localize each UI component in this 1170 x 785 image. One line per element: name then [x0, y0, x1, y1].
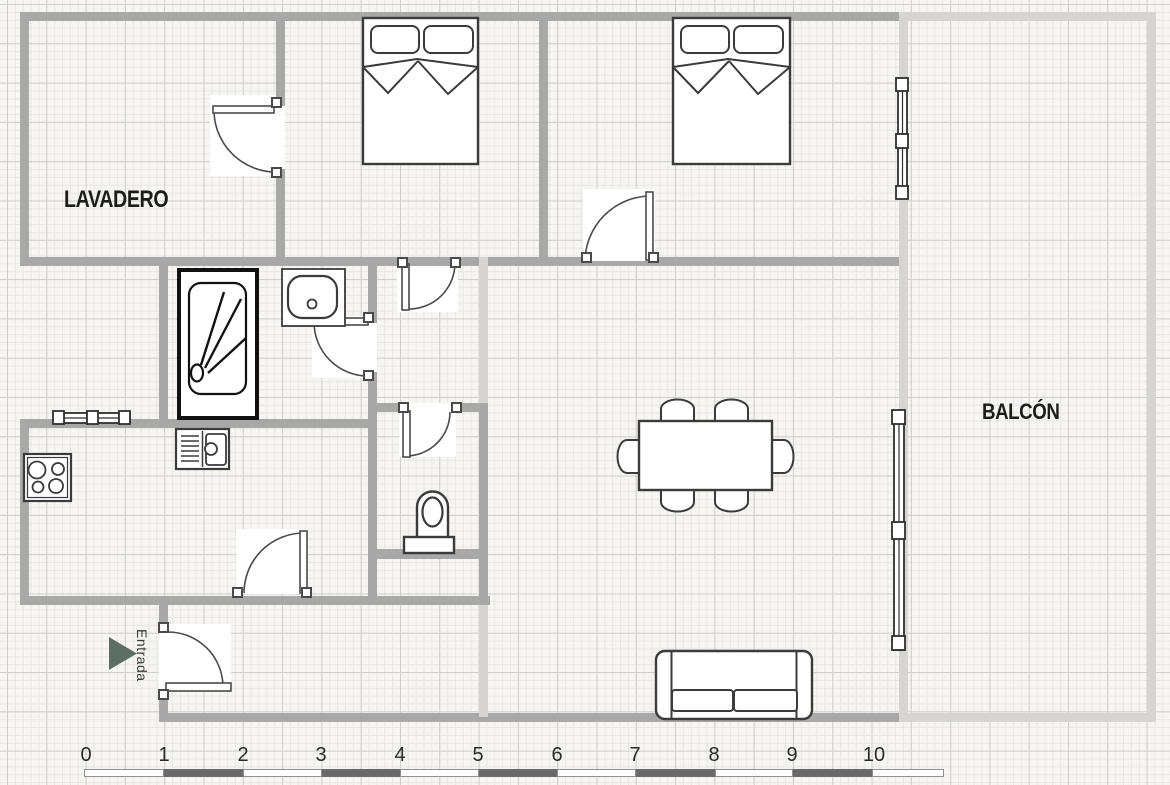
dining-table-set: [618, 400, 794, 512]
wall-balcony-top: [908, 12, 1156, 21]
livingroom-window: [892, 410, 905, 650]
ruler-number: 1: [158, 744, 169, 767]
bed-2: [673, 18, 790, 164]
ruler-number: 9: [786, 744, 797, 767]
ruler-number: 4: [394, 744, 405, 767]
ruler-number: 6: [551, 744, 562, 767]
ruler-number: 0: [80, 744, 91, 767]
entrance-arrow-icon: [109, 637, 137, 670]
shower: [179, 270, 257, 418]
scale-segment: [84, 769, 164, 777]
scale-segment: [322, 769, 400, 777]
floor-plan-canvas: LAVADERO BALCÓN Entrada 0 1 2 3 4 5 6 7 …: [0, 0, 1170, 785]
wall-mid-horizontal: [20, 257, 908, 266]
wall-hall-lower: [479, 605, 488, 717]
ruler-number: 5: [472, 744, 483, 767]
ruler-number: 3: [315, 744, 326, 767]
ruler-number: 8: [708, 744, 719, 767]
scale-segment: [164, 769, 243, 777]
scale-segment: [636, 769, 715, 777]
scale-segment: [400, 769, 479, 777]
furniture: [24, 18, 812, 719]
wall-kitchen-bottom: [20, 596, 490, 605]
scale-segment: [715, 769, 793, 777]
bed-1: [363, 18, 478, 164]
wall-balcony-bottom: [899, 713, 1156, 722]
wall-bathroom-left: [159, 257, 168, 428]
wall-left-lavadero: [20, 12, 29, 266]
ruler-number: 10: [863, 744, 885, 767]
cooktop: [24, 454, 71, 501]
toilet: [404, 491, 454, 553]
scale-segment: [557, 769, 636, 777]
sofa: [656, 651, 812, 719]
bedroom2-window: [896, 78, 908, 199]
kitchen-sink: [176, 429, 229, 469]
scale-segment: [872, 769, 944, 777]
dining-table: [639, 421, 772, 490]
wall-kitchen-left: [20, 419, 29, 605]
room-label-balcon: BALCÓN: [982, 399, 1059, 425]
ruler-number: 7: [629, 744, 640, 767]
room-label-lavadero: LAVADERO: [64, 186, 168, 214]
ruler-number: 2: [237, 744, 248, 767]
scale-segment: [243, 769, 322, 777]
wall-hall-upper: [479, 257, 488, 403]
kitchen-window: [53, 411, 130, 424]
scale-segment: [479, 769, 557, 777]
wall-balcony-right: [1147, 12, 1156, 720]
walls-light: [479, 12, 1156, 722]
wall-wc-right: [479, 403, 488, 605]
entrance-label: Entrada: [134, 629, 150, 682]
scale-segment: [793, 769, 872, 777]
bathroom-sink: [282, 269, 345, 326]
floor-plan-drawing: [0, 0, 1170, 785]
wall-bedroom1-bedroom2: [539, 12, 548, 266]
